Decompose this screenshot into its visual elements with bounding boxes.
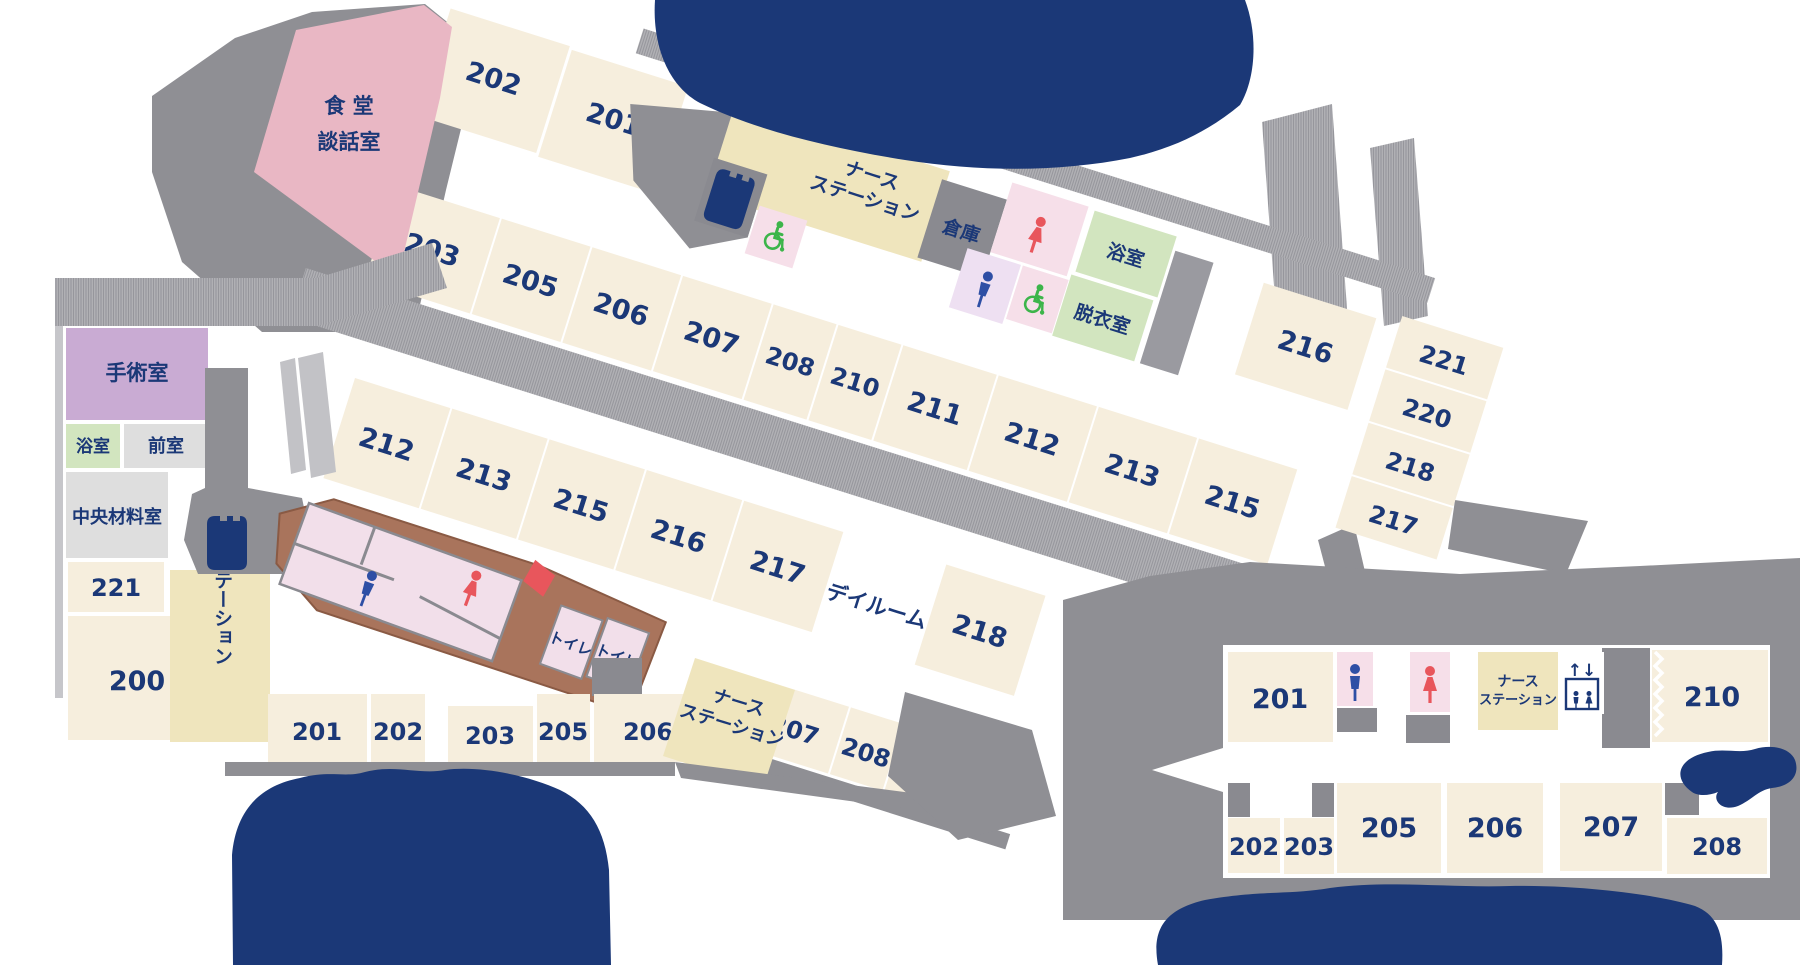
nurse-station-new: ナース ステーション [1478, 652, 1558, 730]
gray-block-r2a [1228, 783, 1250, 817]
floor-map-svg: 202 201 ナース ステーション 倉庫 浴室 脱衣室 [0, 0, 1800, 965]
room-new-201: 201 [1228, 652, 1333, 742]
label-blob-bottom-left [232, 769, 611, 965]
room-new-210: 210 [1652, 650, 1768, 742]
room-new-202: 202 [1228, 818, 1280, 873]
room-mid-205: 205 [537, 694, 590, 762]
svg-text:203: 203 [1284, 833, 1334, 861]
surgery-room: 手術室 [66, 328, 208, 420]
east-wedge-right [1448, 500, 1588, 574]
bath-room-west: 浴室 [66, 424, 120, 468]
stairs-icon [207, 516, 247, 570]
gray-block-f [1406, 715, 1450, 743]
central-supply-room: 中央材料室 [66, 472, 168, 558]
svg-text:ナース: ナース [1497, 674, 1538, 690]
svg-text:210: 210 [1684, 682, 1740, 713]
label-blob-bottom-right [1156, 884, 1722, 965]
dayroom-label: デイルーム [823, 579, 930, 633]
room-mid-201: 201 [268, 694, 367, 762]
gray-col-elevator [1602, 648, 1650, 748]
west-wall [55, 278, 63, 698]
svg-text:201: 201 [292, 718, 342, 746]
hospital-floor-map: 202 201 ナース ステーション 倉庫 浴室 脱衣室 [0, 0, 1800, 965]
svg-text:前室: 前室 [148, 435, 184, 457]
svg-text:浴室: 浴室 [76, 436, 110, 457]
svg-text:中央材料室: 中央材料室 [72, 506, 162, 528]
svg-text:202: 202 [373, 718, 423, 746]
svg-text:205: 205 [538, 718, 588, 746]
svg-text:205: 205 [1361, 813, 1417, 844]
elevator-icon: ↑↓ [1560, 652, 1604, 714]
room-new-206: 206 [1447, 783, 1543, 873]
gray-block-m [1337, 708, 1377, 732]
svg-text:食 堂: 食 堂 [324, 94, 373, 118]
svg-text:手術室: 手術室 [106, 361, 169, 385]
svg-text:談話室: 談話室 [318, 130, 381, 154]
room-top-216: 216 [1235, 283, 1376, 410]
gray-block-r2b [1312, 783, 1334, 817]
svg-text:206: 206 [623, 718, 673, 746]
female-toilet-new [1410, 652, 1450, 712]
room-mid-202: 202 [371, 694, 425, 762]
svg-text:201: 201 [1252, 684, 1308, 715]
svg-text:208: 208 [1692, 833, 1742, 861]
gray-block-toilet [592, 658, 642, 696]
svg-text:200: 200 [109, 666, 165, 697]
room-new-205: 205 [1337, 783, 1441, 873]
room-mid-203: 203 [448, 706, 533, 762]
room-new-208: 208 [1667, 818, 1767, 874]
male-toilet-new [1337, 652, 1373, 706]
svg-text:203: 203 [465, 722, 515, 750]
room-mid-218: 218 [915, 564, 1046, 695]
ward-new: 201 ナース ステーション ↑↓ 210 202 203 205 206 20… [1063, 558, 1800, 920]
svg-text:202: 202 [1229, 833, 1279, 861]
svg-text:ステーション: ステーション [1479, 693, 1557, 708]
new-wing-gray-left [1063, 600, 1223, 900]
room-new-203: 203 [1284, 818, 1334, 874]
room-west-221: 221 [68, 562, 164, 612]
svg-text:207: 207 [1583, 812, 1639, 843]
svg-text:206: 206 [1467, 813, 1523, 844]
west-corridor-band [55, 278, 317, 326]
anteroom: 前室 [124, 424, 208, 468]
room-new-207: 207 [1560, 783, 1662, 871]
svg-text:221: 221 [91, 574, 141, 602]
